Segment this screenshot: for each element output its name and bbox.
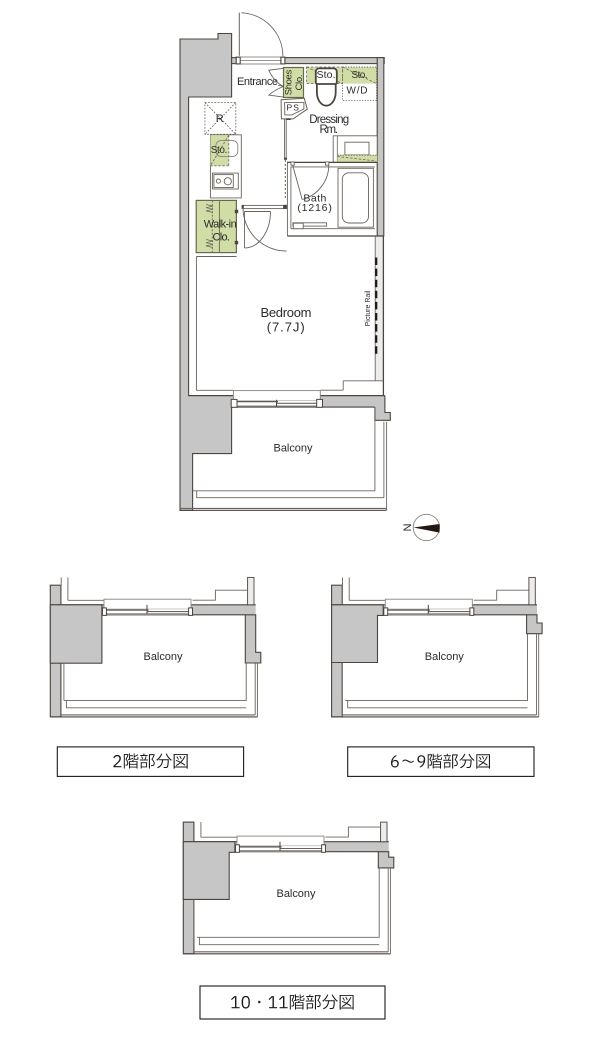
svg-text:(7.7J): (7.7J) (267, 320, 305, 335)
svg-text:Sto.: Sto. (211, 145, 228, 156)
svg-text:Rm.: Rm. (319, 124, 338, 136)
svg-text:Bedroom: Bedroom (261, 305, 312, 320)
svg-text:Sto.: Sto. (352, 70, 368, 81)
svg-text:Picture Rail: Picture Rail (365, 290, 372, 326)
svg-text:Sto.: Sto. (317, 69, 336, 81)
svg-text:N: N (400, 524, 412, 532)
svg-text:Clo.: Clo. (212, 232, 230, 244)
svg-text:Balcony: Balcony (144, 651, 184, 663)
svg-text:W/D: W/D (347, 86, 368, 97)
svg-text:Balcony: Balcony (274, 443, 314, 455)
svg-text:PS: PS (286, 103, 299, 113)
svg-text:Walk-in: Walk-in (204, 218, 237, 230)
svg-text:Entrance: Entrance (237, 76, 278, 88)
svg-text:Balcony: Balcony (277, 888, 317, 900)
svg-text:(1216): (1216) (297, 202, 332, 214)
svg-text:R: R (216, 113, 224, 125)
svg-text:Balcony: Balcony (425, 651, 465, 663)
